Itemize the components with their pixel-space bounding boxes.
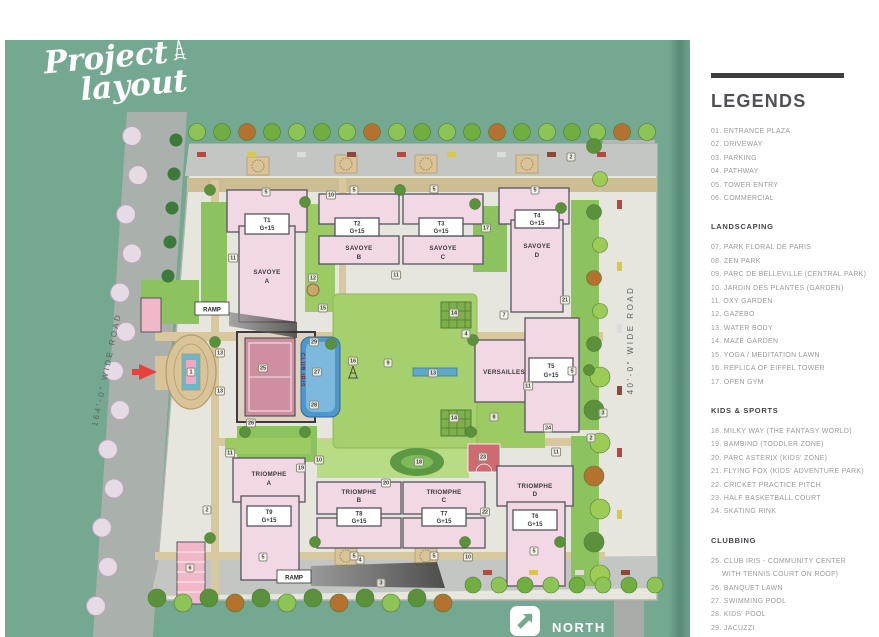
eiffel-tower-icon (171, 37, 189, 64)
legend-item-list: 18. MILKY WAY (THE FANTASY WORLD)19. BAM… (711, 425, 867, 519)
legend-item: 20. PARC ASTERIX (KIDS' ZONE) (711, 452, 867, 465)
tree-icon (460, 537, 471, 548)
page-title: Project layout (43, 36, 192, 108)
tree-icon (590, 433, 610, 453)
tower-floors: G+15 (437, 519, 453, 525)
tree-icon (587, 139, 602, 154)
legend-accent-bar (711, 73, 844, 78)
tree-icon (200, 589, 218, 607)
legend-item: 10. JARDIN DES PLANTES (GARDEN) (711, 282, 867, 295)
north-label: NORTH (552, 620, 606, 635)
tree-icon (87, 597, 106, 616)
legend-item: 12. GAZEBO (711, 308, 867, 321)
tree-icon (364, 124, 381, 141)
entrance-arrow-tail (132, 369, 140, 375)
tree-icon (339, 124, 356, 141)
tree-icon (117, 205, 136, 224)
legend-item: 28. KIDS' POOL (711, 608, 867, 621)
tree-icon (408, 589, 426, 607)
tower-floors: G+15 (350, 229, 366, 235)
tower-triomphe-a: TRIOMPHE A T9 G+15 (233, 458, 305, 580)
gazebo (307, 284, 319, 296)
tree-icon (99, 440, 118, 459)
tower-savoye-a: T1 G+15 SAVOYE A (227, 190, 307, 322)
legend-item: 27. SWIMMING POOL (711, 595, 867, 608)
car-icon (597, 152, 606, 157)
car-icon (529, 570, 538, 575)
legend-title: LEGENDS (711, 91, 867, 112)
legend-item: 14. MAZE GARDEN (711, 335, 867, 348)
tower-name: TRIOMPHE (251, 471, 286, 478)
tree-icon (111, 401, 130, 420)
tower-floors: G+15 (352, 519, 368, 525)
tree-icon (584, 365, 595, 376)
tree-icon (555, 537, 566, 548)
tree-icon (589, 124, 606, 141)
tree-icon (264, 124, 281, 141)
tower-floors: G+15 (262, 518, 278, 524)
tree-icon (240, 427, 251, 438)
site-plan-drawing: T1 G+15 SAVOYE A T2 G+15 SAVOYE B T3 (5, 40, 690, 637)
tower-unit: B (357, 254, 362, 261)
car-icon (497, 152, 506, 157)
car-icon (617, 324, 622, 333)
tree-icon (584, 532, 604, 552)
tower-unit: D (533, 491, 538, 498)
tree-icon (470, 199, 481, 210)
car-icon (247, 152, 256, 157)
tree-icon (569, 577, 585, 593)
tree-icon (300, 427, 311, 438)
tree-icon (123, 127, 142, 146)
legend-item: 16. REPLICA OF EIFFEL TOWER (711, 362, 867, 375)
tower-name: SAVOYE (345, 245, 372, 252)
tree-icon (168, 168, 181, 181)
tower-floors: G+15 (528, 522, 544, 528)
tree-icon (123, 244, 142, 263)
tower-name: SAVOYE (523, 243, 550, 250)
tree-icon (590, 499, 610, 519)
legend-section-heading: LANDSCAPING (711, 222, 867, 231)
legend-item: 15. YOGA / MEDITATION LAWN (711, 349, 867, 362)
tree-icon (414, 124, 431, 141)
tree-icon (389, 124, 406, 141)
tree-icon (434, 594, 452, 612)
tower-floors: G+15 (530, 221, 546, 227)
tree-icon (395, 185, 406, 196)
legend-section-heading: CLUBBING (711, 536, 867, 545)
right-road-label: 40'-0" WIDE ROAD (626, 286, 635, 395)
legend-item: 06. COMMERCIAL (711, 192, 867, 205)
legend-item: 23. HALF BASKETBALL COURT (711, 492, 867, 505)
aux-building (141, 298, 161, 332)
map-edge-shadow (668, 40, 690, 637)
tree-icon (239, 124, 256, 141)
tree-icon (300, 197, 311, 208)
legend-item: 19. BAMBINO (TODDLER ZONE) (711, 438, 867, 451)
tree-icon (647, 577, 663, 593)
tree-icon (382, 594, 400, 612)
car-icon (397, 152, 406, 157)
north-indicator: NORTH (510, 606, 606, 636)
legend-item: 09. PARC DE BELLEVILLE (CENTRAL PARK) (711, 268, 867, 281)
tree-icon (464, 124, 481, 141)
tree-icon (593, 238, 608, 253)
title-line-2: layout (79, 66, 192, 106)
tree-icon (278, 594, 296, 612)
club-iris-label: CLUB IRIS (299, 353, 305, 388)
legend-item: 26. BANQUET LAWN (711, 582, 867, 595)
tower-code: T9 (265, 510, 273, 516)
garden (201, 202, 227, 314)
legend-item: 24. SKATING RINK (711, 505, 867, 518)
tree-icon (164, 236, 177, 249)
tree-icon (111, 283, 130, 302)
legend-item-list: 07. PARK FLORAL DE PARIS08. ZEN PARK09. … (711, 241, 867, 388)
tree-icon (465, 577, 481, 593)
car-icon (447, 152, 456, 157)
water-body (413, 368, 457, 376)
tower-code: T4 (533, 214, 541, 220)
tree-icon (614, 124, 631, 141)
tower-unit: C (441, 254, 446, 261)
tree-icon (326, 339, 337, 350)
legend-item: 25. CLUB IRIS - COMMUNITY CENTER WITH TE… (711, 555, 867, 582)
tree-icon (93, 518, 112, 537)
tree-icon (639, 124, 656, 141)
tower-code: T2 (353, 222, 361, 228)
car-icon (617, 386, 622, 395)
tower-triomphe-d: TRIOMPHE D T6 G+15 (497, 466, 573, 586)
tree-icon (226, 594, 244, 612)
tree-icon (129, 166, 148, 185)
tree-icon (584, 400, 604, 420)
tree-icon (289, 124, 306, 141)
tower-name: SAVOYE (253, 269, 280, 276)
tree-icon (593, 172, 608, 187)
tower-name: TRIOMPHE (426, 489, 461, 496)
tree-icon (189, 124, 206, 141)
tower-unit: D (535, 252, 540, 259)
tree-icon (205, 533, 216, 544)
tower-code: T7 (440, 512, 448, 518)
legend-item: 08. ZEN PARK (711, 255, 867, 268)
legend-item: 22. CRICKET PRACTICE PITCH (711, 479, 867, 492)
tree-icon (543, 577, 559, 593)
tree-icon (468, 335, 479, 346)
tree-icon (621, 577, 637, 593)
building-versailles: VERSAILLES (475, 340, 533, 402)
tree-icon (105, 479, 124, 498)
tower-code: T8 (355, 512, 363, 518)
legend-item: 21. FLYING FOX (KIDS' ADVENTURE PARK) (711, 465, 867, 478)
tree-icon (587, 205, 602, 220)
tree-icon (593, 304, 608, 319)
legend-item: 11. OXY GARDEN (711, 295, 867, 308)
car-icon (347, 152, 356, 157)
tree-icon (174, 594, 192, 612)
tree-icon (252, 589, 270, 607)
car-icon (617, 262, 622, 271)
tree-icon (162, 270, 175, 283)
car-icon (621, 570, 630, 575)
tree-icon (595, 577, 611, 593)
tree-icon (210, 337, 221, 348)
tower-floors: G+15 (260, 226, 276, 232)
car-icon (617, 200, 622, 209)
legend-panel: LEGENDS 01. ENTRANCE PLAZA02. DRIVEWAY03… (690, 0, 879, 637)
tower-name: TRIOMPHE (341, 489, 376, 496)
tree-icon (148, 589, 166, 607)
ramp-label: RAMP (203, 308, 221, 314)
legend-item-list: 01. ENTRANCE PLAZA02. DRIVEWAY03. PARKIN… (711, 125, 867, 205)
tree-icon (514, 124, 531, 141)
tower-name: TRIOMPHE (517, 483, 552, 490)
page: T1 G+15 SAVOYE A T2 G+15 SAVOYE B T3 (0, 0, 879, 637)
car-icon (575, 570, 584, 575)
tree-icon (205, 185, 216, 196)
milky-way (390, 448, 444, 476)
tower-t5: T5 G+15 (525, 318, 579, 432)
garden (225, 438, 311, 454)
tree-icon (170, 134, 183, 147)
legend-item-list: 25. CLUB IRIS - COMMUNITY CENTER WITH TE… (711, 555, 867, 635)
building-name: VERSAILLES (483, 369, 525, 376)
tree-icon (539, 124, 556, 141)
site-plan-panel: T1 G+15 SAVOYE A T2 G+15 SAVOYE B T3 (5, 40, 690, 637)
tree-icon (587, 271, 602, 286)
tree-icon (584, 466, 604, 486)
maze-garden (441, 302, 471, 328)
tree-icon (330, 594, 348, 612)
basketball-court (468, 444, 500, 472)
car-icon (617, 510, 622, 519)
car-icon (483, 570, 492, 575)
tower-unit: C (442, 497, 447, 504)
legend-item: 29. JACUZZI (711, 622, 867, 635)
legend-item: 17. OPEN GYM (711, 376, 867, 389)
tree-icon (99, 557, 118, 576)
car-icon (297, 152, 306, 157)
tower-unit: B (357, 497, 362, 504)
legend-item: 18. MILKY WAY (THE FANTASY WORLD) (711, 425, 867, 438)
swimming-pool (301, 337, 340, 417)
tree-icon (214, 124, 231, 141)
legend-item: 01. ENTRANCE PLAZA (711, 125, 867, 138)
tower-code: T3 (437, 222, 445, 228)
tree-icon (439, 124, 456, 141)
legend-item: 07. PARK FLORAL DE PARIS (711, 241, 867, 254)
tree-icon (587, 337, 602, 352)
legend-section-heading: KIDS & SPORTS (711, 406, 867, 415)
tower-code: T5 (547, 364, 555, 370)
legend-item: 02. DRIVEWAY (711, 138, 867, 151)
tree-icon (356, 589, 374, 607)
legend-item: 03. PARKING (711, 152, 867, 165)
tower-name: SAVOYE (429, 245, 456, 252)
tree-icon (517, 577, 533, 593)
legend-item: 04. PATHWAY (711, 165, 867, 178)
tree-icon (556, 203, 567, 214)
tree-icon (304, 589, 322, 607)
tower-unit: A (267, 480, 272, 487)
tower-code: T1 (263, 218, 271, 224)
legend-item: 13. WATER BODY (711, 322, 867, 335)
ramp-label: RAMP (285, 576, 303, 582)
tree-icon (564, 124, 581, 141)
car-icon (197, 152, 206, 157)
legend-sections: 01. ENTRANCE PLAZA02. DRIVEWAY03. PARKIN… (711, 125, 867, 635)
tree-icon (166, 202, 179, 215)
tower-floors: G+15 (434, 229, 450, 235)
tree-icon (489, 124, 506, 141)
tree-icon (466, 427, 477, 438)
tower-code: T6 (531, 514, 539, 520)
tower-floors: G+15 (544, 373, 560, 379)
tree-icon (314, 124, 331, 141)
tree-icon (491, 577, 507, 593)
tree-icon (310, 537, 321, 548)
tower-unit: A (265, 278, 270, 285)
car-icon (617, 448, 622, 457)
car-icon (547, 152, 556, 157)
legend-item: 05. TOWER ENTRY (711, 179, 867, 192)
